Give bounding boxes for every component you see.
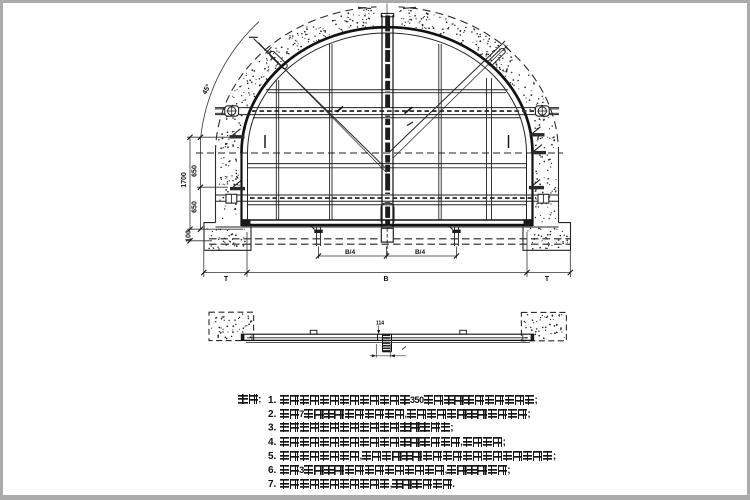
svg-text:114: 114 <box>376 321 384 327</box>
svg-text:100: 100 <box>186 230 193 242</box>
svg-text:B/4: B/4 <box>415 249 426 256</box>
svg-text:1700: 1700 <box>181 172 188 188</box>
svg-text:T: T <box>545 276 550 283</box>
svg-text:650: 650 <box>192 201 199 213</box>
svg-text:B/4: B/4 <box>345 249 356 256</box>
svg-text:B: B <box>383 276 388 283</box>
svg-text:650: 650 <box>192 165 199 177</box>
svg-text:T: T <box>224 276 229 283</box>
